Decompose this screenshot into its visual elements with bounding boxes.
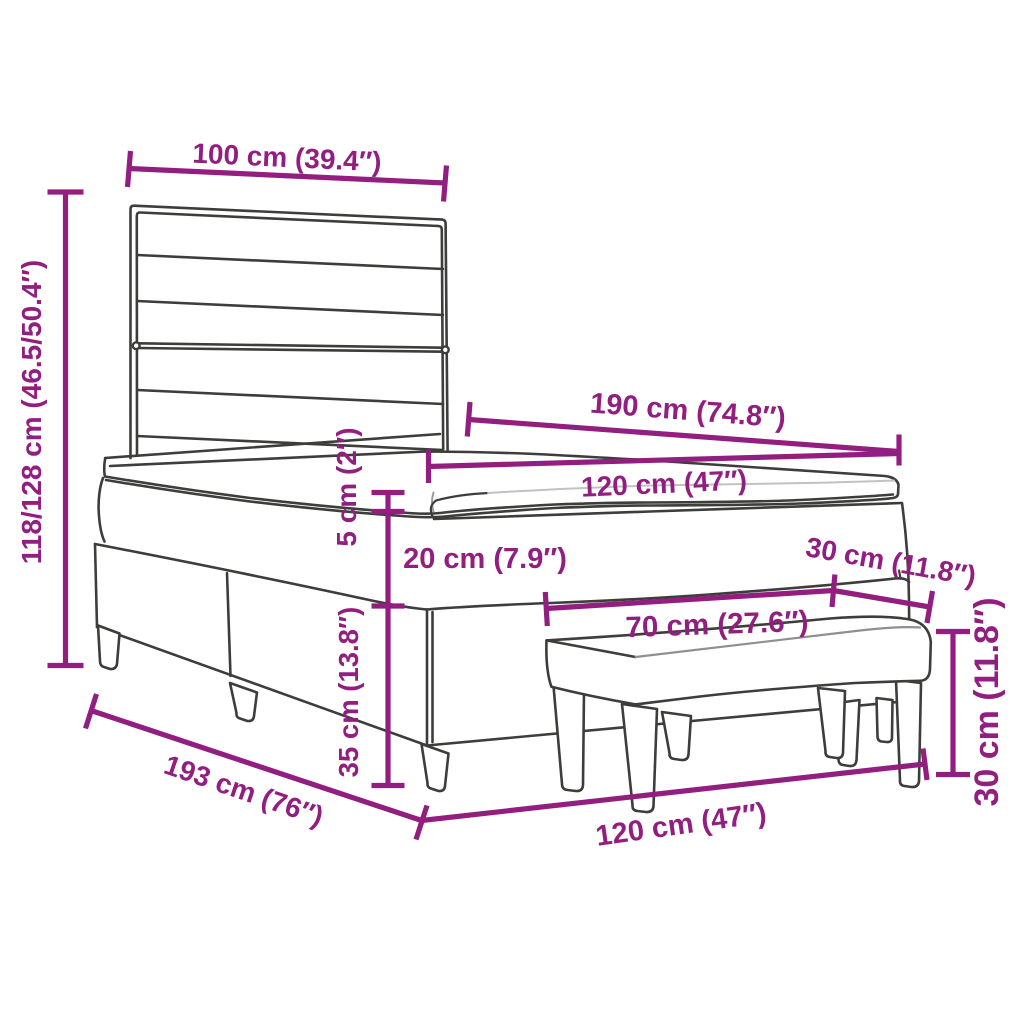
- svg-text:120 cm (47″): 120 cm (47″): [580, 464, 747, 502]
- svg-text:30 cm (11.8″): 30 cm (11.8″): [803, 531, 978, 591]
- svg-text:190 cm (74.8″): 190 cm (74.8″): [589, 388, 787, 435]
- svg-text:120 cm (47″): 120 cm (47″): [594, 797, 769, 853]
- svg-text:70 cm (27.6″): 70 cm (27.6″): [625, 605, 809, 644]
- svg-text:118/128 cm (46.5/50.4″): 118/128 cm (46.5/50.4″): [16, 260, 47, 565]
- svg-text:20 cm (7.9″): 20 cm (7.9″): [403, 543, 567, 575]
- svg-text:5 cm (2″): 5 cm (2″): [331, 427, 362, 546]
- svg-text:30 cm (11.8″): 30 cm (11.8″): [968, 597, 1006, 806]
- svg-text:35 cm (13.8″): 35 cm (13.8″): [333, 607, 364, 778]
